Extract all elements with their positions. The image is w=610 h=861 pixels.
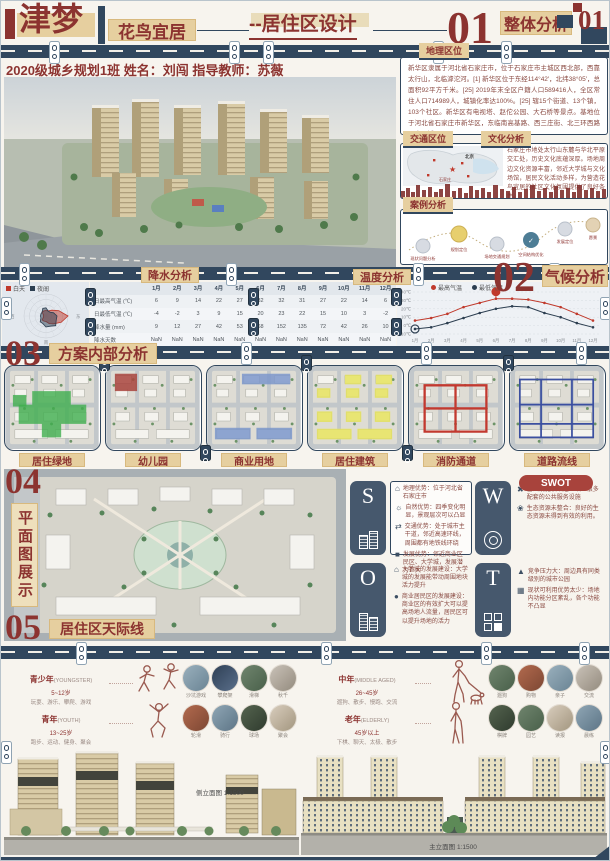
- traffic-culture-box: ★ 北京 石家庄 石家庄市地处太行山东麓与华北平原交汇处，历史文化底蕴深厚。场地…: [400, 143, 608, 199]
- svg-text:9月: 9月: [541, 338, 548, 344]
- header-tagline: 花鸟宜居: [108, 19, 196, 41]
- eco-icon: ❀: [517, 505, 524, 521]
- side-elevation-illustration: 侧立面图 1:1500: [4, 743, 299, 855]
- temp-analysis-label: 温度分析: [353, 269, 411, 285]
- road-marker: [241, 342, 252, 365]
- activity-photo: [183, 665, 209, 691]
- geo-text: 新华区隶属于河北省石家庄市，位于石家庄市主城区西北部，西靠太行山，北临滹沱河。[…: [408, 63, 600, 135]
- divider-post: [85, 318, 96, 336]
- section-04-number: 04: [5, 463, 41, 499]
- swot-badge: SWOT: [519, 475, 593, 491]
- elevation-side: 侧立面图 1:1500: [4, 743, 299, 855]
- poster: 津梦 花鸟宜居 --居住区设计 01 整体分析 01 2020级城乡规划1班 姓…: [0, 0, 610, 861]
- svg-text:愿景: 愿景: [589, 235, 597, 241]
- svg-text:现状问题分析: 现状问题分析: [410, 255, 435, 262]
- divider-post: [391, 318, 402, 336]
- divider-post: [248, 288, 259, 306]
- header-line-1: [197, 30, 249, 31]
- precip-table: 1月2月3月4月5月6月7月8月9月10月11月12月日最高气温 (℃)6914…: [90, 282, 396, 346]
- svg-text:10月: 10月: [556, 338, 565, 344]
- factory-icon: ▦: [517, 587, 525, 611]
- precip-analysis-label: 降水分析: [141, 267, 199, 283]
- corner-triangle: [589, 845, 610, 861]
- activity-photo: [212, 665, 238, 691]
- site-plan: [4, 469, 346, 641]
- panel-label-fire-lane: 消防通道: [423, 453, 489, 467]
- youth-silhouette: [137, 699, 181, 743]
- mini-panel-residential-buildings: [307, 365, 404, 451]
- mini-panel-kindergarten: [105, 365, 202, 451]
- swot-s-tile: S: [350, 481, 386, 555]
- section-03-number: 03: [5, 335, 41, 371]
- swot-s-points: ⌂地理优势：位于河北省石家庄市 ☼自然优势：四季变化明显，景观层次可以凸显 ⇄交…: [390, 481, 472, 555]
- swot-o-points: ⌂大学城的发展建设：大学城的发展能带动周围地块活力提升 ●商业居民区的发展建设：…: [390, 563, 472, 637]
- age-group-elderly: 老年(ELDERLY) 45岁以上下棋、聊天、太极、散步: [319, 709, 415, 746]
- site-plan-illustration: [4, 469, 346, 641]
- connector: [109, 723, 133, 724]
- road-marker: [1, 741, 12, 764]
- elevation-main: 主立面图 1:1500: [301, 743, 607, 855]
- high-dot-icon: [431, 285, 436, 290]
- activity-photo: [270, 665, 296, 691]
- divider-post: [391, 288, 402, 306]
- road-marker: [600, 741, 610, 764]
- age-group-youth: 青年(YOUTH) 13~25岁跑步、运动、健身、聚会: [13, 709, 109, 746]
- brand-title: 津梦: [19, 3, 83, 35]
- activity-photo: [576, 665, 602, 691]
- svg-text:0℃: 0℃: [403, 323, 412, 328]
- day-swatch-icon: [6, 286, 11, 291]
- shop-icon: ●: [394, 593, 399, 625]
- main-elevation-label: 主立面图 1:1500: [429, 842, 477, 851]
- mini-panel-road-circulation: [509, 365, 606, 451]
- road-marker: [481, 642, 492, 665]
- svg-text:规划定位: 规划定位: [451, 246, 468, 253]
- section-05-number: 05: [5, 609, 41, 645]
- night-swatch-icon: [30, 286, 35, 291]
- temp-legend-high: 最高气温: [431, 283, 462, 292]
- mini-panel-fire-lane: [408, 365, 505, 451]
- svg-text:8月: 8月: [525, 338, 532, 344]
- section-02-label: 气候分析: [542, 265, 608, 287]
- header-line-2: [373, 30, 447, 31]
- activity-photo: [183, 705, 209, 731]
- precip-table-wrap: 1月2月3月4月5月6月7月8月9月10月11月12月日最高气温 (℃)6914…: [90, 282, 396, 346]
- svg-text:发展定位: 发展定位: [557, 238, 574, 245]
- activity-photo: [241, 705, 267, 731]
- activity-photo: [518, 705, 544, 731]
- header-divider: [98, 6, 105, 44]
- section-04-label: 平面图展示: [11, 503, 38, 607]
- divider-post: [301, 355, 312, 371]
- road-marker: [76, 642, 87, 665]
- swot-o-tile: O: [350, 563, 386, 637]
- age-group-youngster: 青少年(YOUNGSTER) 5~12岁玩耍、游乐、攀爬、游戏: [13, 669, 109, 706]
- age-group-middle-aged: 中年(MIDDLE AGED) 26~45岁遛狗、散步、慢跑、交流: [319, 669, 415, 706]
- svg-text:6月: 6月: [493, 338, 500, 344]
- chart-icon: ▲: [517, 568, 525, 584]
- globe-icon: ☼: [395, 504, 402, 520]
- svg-text:10℃: 10℃: [401, 315, 412, 320]
- swot-w-tile: W: [475, 481, 511, 555]
- map-label-shijiazhuang: 石家庄: [439, 176, 451, 182]
- road-marker: [321, 642, 332, 665]
- swot-t-points: ▲竞争压力大：周边具有同类级别的城市公园 ▦现状可利用优势太少：场地内功能分区紊…: [513, 565, 607, 637]
- school-icon: ⌂: [394, 566, 399, 590]
- svg-text:30℃: 30℃: [401, 298, 412, 303]
- location-icon: ⌂: [395, 485, 400, 501]
- region-map: ★ 北京 石家庄: [403, 146, 503, 186]
- road-marker: [421, 342, 432, 365]
- grid-icon: [484, 613, 502, 631]
- divider-post: [503, 355, 514, 371]
- svg-text:3月: 3月: [444, 338, 451, 344]
- divider-post: [85, 288, 96, 306]
- section-02-number: 02: [493, 257, 535, 299]
- activity-photo: [270, 705, 296, 731]
- activity-photo: [489, 705, 515, 731]
- map-label-beijing: 北京: [465, 153, 474, 160]
- road-marker: [579, 642, 590, 665]
- svg-text:4月: 4月: [460, 338, 467, 344]
- section-05-label: 居住区天际线: [49, 619, 155, 639]
- swot-t-tile: T: [475, 563, 511, 637]
- target-icon: [484, 531, 502, 549]
- geo-text-box: 新华区隶属于河北省石家庄市，位于石家庄市主城区西北部，西靠太行山，北临滹沱河。[…: [400, 57, 608, 135]
- road-marker: [263, 41, 274, 64]
- city-skyline-silhouette: [401, 183, 607, 198]
- panel-label-kindergarten: 幼儿园: [125, 453, 181, 467]
- side-elevation-label: 侧立面图 1:1500: [196, 788, 244, 797]
- divider-post: [248, 318, 259, 336]
- road-marker: [1, 297, 12, 320]
- swot-w-points: ✖基础设施较缺乏：缺少很多配套的公共服务设施 ❀生态资源未整合：良好的生态资源未…: [513, 483, 607, 555]
- svg-text:✓: ✓: [528, 238, 534, 245]
- road-bar-1: [1, 45, 610, 58]
- section-03-label: 方案内部分析: [49, 343, 157, 364]
- activity-photo: [547, 705, 573, 731]
- svg-text:7月: 7月: [509, 338, 516, 344]
- road-icon: ⇄: [395, 523, 402, 547]
- corner-page-number: 01: [578, 7, 605, 34]
- divider-post: [402, 445, 413, 461]
- svg-text:20℃: 20℃: [401, 306, 412, 311]
- traffic-location-tag: 交通区位: [403, 131, 453, 148]
- road-marker: [229, 41, 240, 64]
- map-star-icon: ★: [449, 165, 456, 174]
- activity-photo: [576, 705, 602, 731]
- activity-photo: [241, 665, 267, 691]
- main-elevation-illustration: 主立面图 1:1500: [301, 743, 607, 855]
- corner-deco-navy-1: [557, 15, 573, 28]
- svg-text:东: 东: [76, 313, 81, 319]
- bottom-frame: [1, 857, 610, 861]
- road-marker: [501, 41, 512, 64]
- svg-text:1月: 1月: [412, 338, 419, 344]
- low-dot-icon: [472, 285, 477, 290]
- svg-text:40℃: 40℃: [401, 290, 412, 295]
- road-marker: [19, 263, 30, 286]
- svg-text:12月: 12月: [588, 338, 597, 344]
- activity-photo: [547, 665, 573, 691]
- case-analysis-tag: 案例分析: [403, 197, 453, 214]
- aerial-render: [4, 77, 396, 267]
- panel-label-road: 道路流线: [524, 453, 590, 467]
- divider-post: [200, 445, 211, 461]
- building-icon: [359, 613, 378, 631]
- header-subtitle: --居住区设计: [249, 9, 357, 40]
- mini-panel-green-space: [4, 365, 101, 451]
- brand-accent-bar: [5, 9, 15, 39]
- aerial-render-illustration: [4, 77, 396, 267]
- geo-location-tag: 地理区位: [419, 43, 469, 60]
- activity-photo: [212, 705, 238, 731]
- activity-photo: [489, 665, 515, 691]
- svg-text:5月: 5月: [476, 338, 483, 344]
- road-marker: [226, 263, 237, 286]
- road-marker: [49, 41, 60, 64]
- building-icon: [359, 531, 378, 549]
- wind-legend-night: 夜间: [30, 284, 49, 293]
- road-marker: [576, 342, 587, 365]
- road-marker: [413, 263, 424, 286]
- svg-text:南: 南: [44, 339, 49, 345]
- road-marker: [600, 297, 610, 320]
- mini-panel-commercial: [206, 365, 303, 451]
- culture-analysis-tag: 文化分析: [481, 131, 531, 148]
- road-bar-4: [1, 646, 610, 659]
- connector: [415, 723, 431, 724]
- panel-label-commercial: 商业用地: [221, 453, 287, 467]
- elderly-silhouette: [441, 699, 473, 749]
- activity-photo: [518, 665, 544, 691]
- panel-label-residential: 居住建筑: [322, 453, 388, 467]
